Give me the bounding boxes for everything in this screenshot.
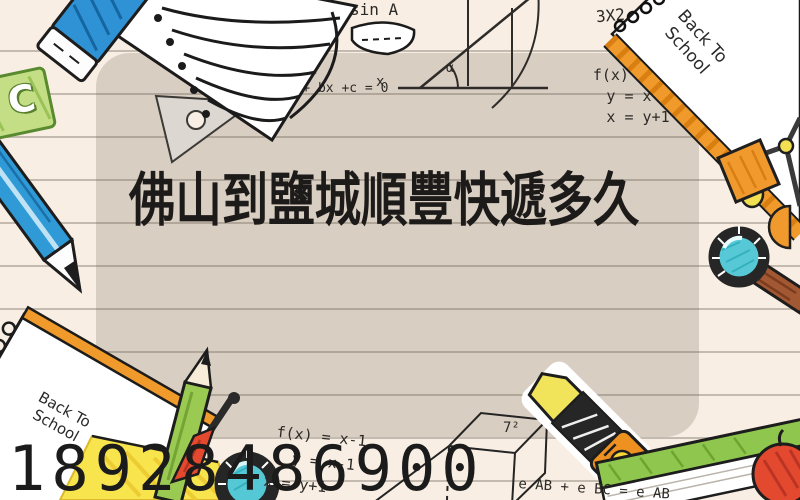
formula-quadratic: ax2 + bx +c = 0 (271, 81, 388, 96)
formula-block-top-right: f(x) = x-1 y = x-1 x = y+1 (572, 65, 704, 128)
formula-fx-line1: f(x) = x-1 (572, 65, 704, 86)
formula-3x2: 3X2 (595, 5, 625, 26)
formula-seven-squared: 7² (503, 420, 520, 436)
phone-number: 18928486900 (8, 438, 485, 500)
page-title: 佛山到鹽城順豐快遞多久 (129, 171, 639, 229)
label-alpha: α (446, 61, 454, 76)
banner-canvas: sin A 3X2 ax2 + bx +c = 0 f(x) = x-1 y =… (0, 0, 800, 500)
formula-fx-line3: x = y+1 (572, 107, 704, 128)
formula-sin-a: sin A (350, 0, 398, 19)
formula-fx-line2: y = x-1 (572, 86, 704, 107)
label-x-axis: x (376, 74, 384, 90)
